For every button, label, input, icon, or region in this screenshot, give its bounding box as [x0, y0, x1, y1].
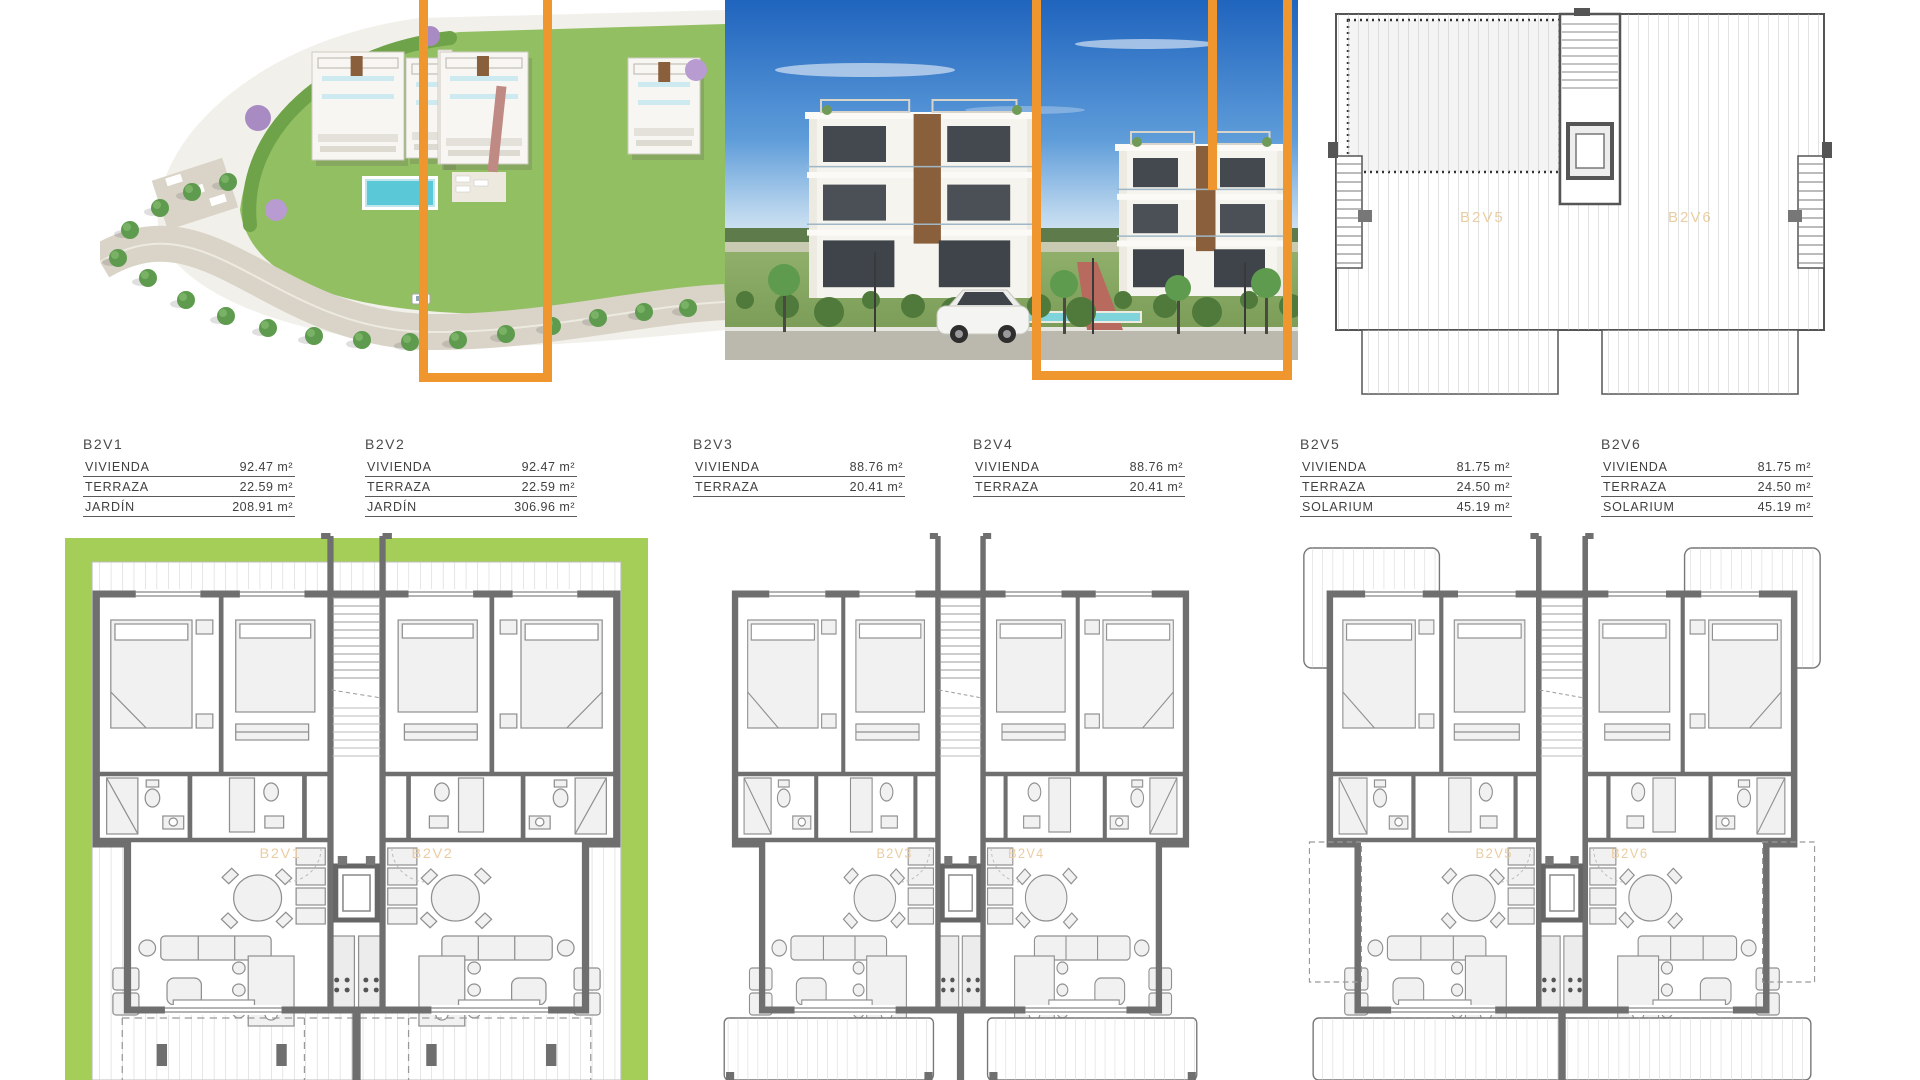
bathtub [1049, 778, 1071, 832]
area-value: 24.50 m² [1457, 480, 1510, 494]
area-label: TERRAZA [367, 480, 431, 494]
side-table [557, 940, 574, 956]
unit-area-row: SOLARIUM45.19 m² [1601, 499, 1813, 517]
sink [1024, 816, 1040, 828]
unit-table-b2v4: B2V4VIVIENDA88.76 m²TERRAZA20.41 m² [973, 436, 1185, 499]
side-table [1741, 940, 1756, 956]
stool [1661, 962, 1672, 974]
area-label: TERRAZA [1603, 480, 1667, 494]
toilet [145, 789, 160, 807]
area-value: 81.75 m² [1758, 460, 1811, 474]
floorplan-unit-label: B2V2 [412, 846, 454, 862]
stool [468, 962, 480, 974]
area-label: VIVIENDA [85, 460, 150, 474]
balconies [724, 1010, 1197, 1080]
area-label: JARDÍN [85, 500, 135, 514]
area-value: 92.47 m² [240, 460, 293, 474]
unit-area-row: VIVIENDA88.76 m² [693, 459, 905, 477]
bathtub [459, 778, 484, 832]
side-table [1368, 940, 1383, 956]
building [312, 52, 408, 166]
unit-area-row: VIVIENDA92.47 m² [365, 459, 577, 477]
area-label: TERRAZA [1302, 480, 1366, 494]
highlight-box-street-inner-edge [1208, 0, 1217, 190]
side-table [772, 940, 786, 956]
highlight-box-aerial [419, 0, 552, 382]
unit-area-row: TERRAZA24.50 m² [1601, 479, 1813, 497]
bathtub [850, 778, 872, 832]
bathtub [1653, 778, 1675, 832]
unit-table-header: B2V6 [1601, 436, 1813, 452]
sink [265, 816, 284, 828]
area-label: JARDÍN [367, 500, 417, 514]
unit-area-row: TERRAZA24.50 m² [1300, 479, 1512, 497]
page-canvas: BLOQUE 2 [0, 0, 1920, 1080]
unit-table-b2v2: B2V2VIVIENDA92.47 m²TERRAZA22.59 m²JARDÍ… [365, 436, 577, 519]
building [805, 100, 1039, 298]
unit-table-b2v3: B2V3VIVIENDA88.76 m²TERRAZA20.41 m² [693, 436, 905, 499]
stool [1452, 984, 1463, 996]
toilet [880, 783, 893, 801]
unit-area-row: TERRAZA20.41 m² [973, 479, 1185, 497]
area-value: 208.91 m² [232, 500, 293, 514]
bathtub [1449, 778, 1471, 832]
unit-area-row: JARDÍN306.96 m² [365, 499, 577, 517]
elevator [336, 856, 378, 920]
floorplan-second-b2v5-b2v6: B2V5 B2V6 [1302, 532, 1822, 1080]
toilet [777, 789, 790, 807]
stool [233, 984, 245, 996]
toilet [1374, 789, 1387, 807]
area-label: VIVIENDA [1603, 460, 1668, 474]
roof-outline [1328, 8, 1832, 394]
bathtub [229, 778, 254, 832]
elevator [1543, 856, 1580, 920]
unit-table-header: B2V5 [1300, 436, 1512, 452]
unit-area-row: VIVIENDA81.75 m² [1601, 459, 1813, 477]
floorplan-unit-label: B2V5 [1476, 846, 1513, 862]
area-label: VIVIENDA [695, 460, 760, 474]
unit-area-row: TERRAZA22.59 m² [83, 479, 295, 497]
floorplan-ground-b2v1-b2v2: B2V1 B2V2 [65, 532, 648, 1080]
unit-area-row: TERRAZA22.59 m² [365, 479, 577, 497]
area-label: TERRAZA [85, 480, 149, 494]
area-label: TERRAZA [975, 480, 1039, 494]
area-label: SOLARIUM [1603, 500, 1675, 514]
area-value: 24.50 m² [1758, 480, 1811, 494]
toilet [1028, 783, 1041, 801]
area-value: 22.59 m² [240, 480, 293, 494]
area-value: 88.76 m² [1130, 460, 1183, 474]
toilet [1479, 783, 1492, 801]
stool [1661, 984, 1672, 996]
stool [853, 984, 864, 996]
toilet [1131, 789, 1144, 807]
unit-area-row: JARDÍN208.91 m² [83, 499, 295, 517]
dining-table [1629, 875, 1672, 921]
stool [1057, 984, 1068, 996]
side-table [1135, 940, 1149, 956]
area-value: 45.19 m² [1758, 500, 1811, 514]
floorplan-first-b2v3-b2v4: B2V3 B2V4 [708, 532, 1213, 1080]
area-label: VIVIENDA [367, 460, 432, 474]
unit-area-row: TERRAZA20.41 m² [693, 479, 905, 497]
toilet [1738, 789, 1751, 807]
area-value: 45.19 m² [1457, 500, 1510, 514]
unit-area-row: VIVIENDA88.76 m² [973, 459, 1185, 477]
floorplan-unit-label: B2V6 [1611, 846, 1648, 862]
area-value: 20.41 m² [1130, 480, 1183, 494]
aerial-render-image [100, 0, 725, 392]
dining-table [431, 875, 479, 921]
sink [881, 816, 897, 828]
dining-table [1025, 875, 1066, 921]
unit-area-row: VIVIENDA81.75 m² [1300, 459, 1512, 477]
unit-table-header: B2V3 [693, 436, 905, 452]
stool [1452, 962, 1463, 974]
dining-table [1452, 875, 1495, 921]
sink [429, 816, 448, 828]
toilet [553, 789, 568, 807]
unit-table-b2v6: B2V6VIVIENDA81.75 m²TERRAZA24.50 m²SOLAR… [1601, 436, 1813, 519]
sink [1627, 816, 1644, 828]
stool [853, 962, 864, 974]
sink [1480, 816, 1497, 828]
elevator [942, 856, 978, 920]
roof-plan-drawing: B2V5 B2V6 [1328, 6, 1833, 402]
area-label: SOLARIUM [1302, 500, 1374, 514]
unit-table-b2v5: B2V5VIVIENDA81.75 m²TERRAZA24.50 m²SOLAR… [1300, 436, 1512, 519]
area-value: 92.47 m² [522, 460, 575, 474]
area-label: VIVIENDA [1302, 460, 1367, 474]
area-label: VIVIENDA [975, 460, 1040, 474]
unit-area-row: SOLARIUM45.19 m² [1300, 499, 1512, 517]
area-label: TERRAZA [695, 480, 759, 494]
toilet [435, 783, 450, 801]
toilet [264, 783, 279, 801]
dining-table [854, 875, 895, 921]
unit-table-header: B2V4 [973, 436, 1185, 452]
unit-table-b2v1: B2V1VIVIENDA92.47 m²TERRAZA22.59 m²JARDÍ… [83, 436, 295, 519]
side-table [139, 940, 156, 956]
highlight-box-street [1032, 0, 1292, 380]
dining-table [234, 875, 282, 921]
floorplan-unit-label: B2V3 [877, 845, 913, 861]
area-value: 22.59 m² [522, 480, 575, 494]
floorplan-unit-label: B2V1 [260, 846, 302, 862]
unit-table-header: B2V1 [83, 436, 295, 452]
area-value: 88.76 m² [850, 460, 903, 474]
unit-area-row: VIVIENDA92.47 m² [83, 459, 295, 477]
area-value: 306.96 m² [514, 500, 575, 514]
unit-table-header: B2V2 [365, 436, 577, 452]
area-value: 20.41 m² [850, 480, 903, 494]
roof-label-right: B2V6 [1668, 209, 1713, 226]
roof-label-left: B2V5 [1460, 209, 1505, 226]
toilet [1632, 783, 1645, 801]
stool [1057, 962, 1068, 974]
area-value: 81.75 m² [1457, 460, 1510, 474]
stool [468, 984, 480, 996]
stool [233, 962, 245, 974]
floorplan-unit-label: B2V4 [1008, 845, 1044, 861]
